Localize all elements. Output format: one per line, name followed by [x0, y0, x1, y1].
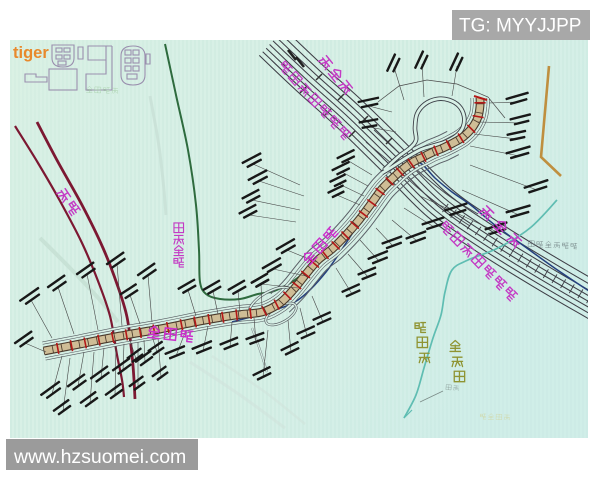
svg-text:tiger: tiger — [13, 44, 49, 62]
svg-text:www.hzsuomei.com: www.hzsuomei.com — [13, 446, 186, 468]
svg-text:TG: MYYJJPP: TG: MYYJJPP — [459, 16, 581, 37]
